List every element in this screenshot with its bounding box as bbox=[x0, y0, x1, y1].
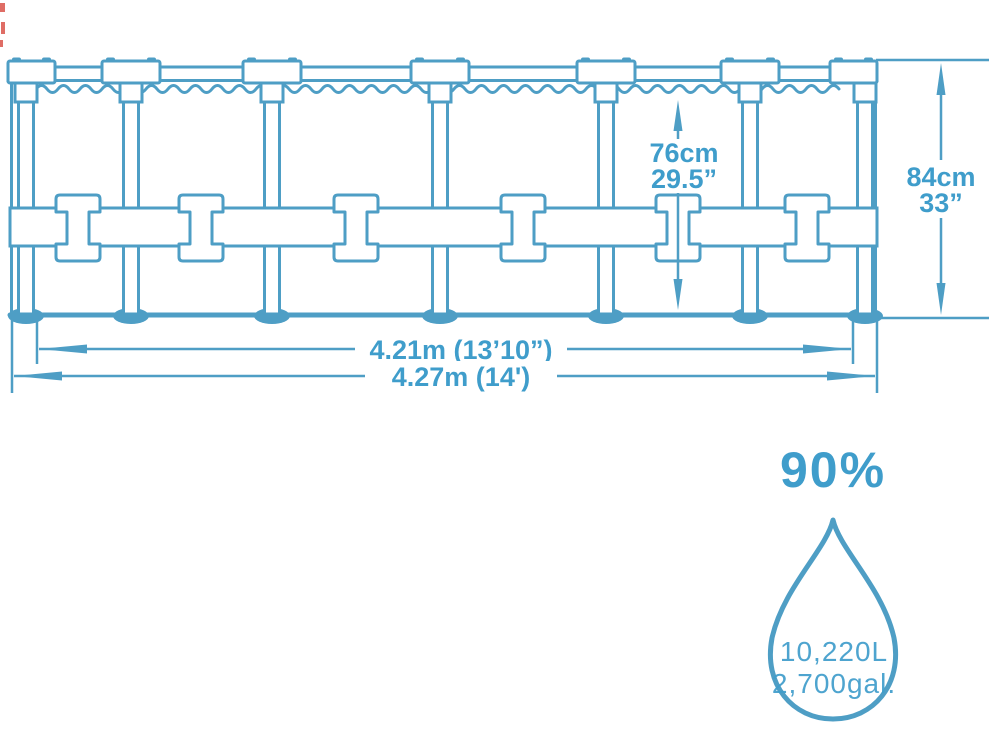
fill-percent-label: 90% bbox=[780, 442, 886, 498]
capacity-liters-label: 10,220L bbox=[780, 636, 888, 667]
frame-leg bbox=[113, 82, 149, 324]
scan-artifact-marks bbox=[0, 3, 5, 47]
diagram-page: 76cm 29.5” 84cm 33” 4.21m (13’10”) 4.27m… bbox=[0, 0, 1000, 750]
frame-leg bbox=[422, 82, 458, 324]
height-imperial-label: 33” bbox=[919, 188, 963, 218]
capacity-gallons-label: 2,700gal. bbox=[772, 668, 896, 699]
capacity-indicator: 90% 10,220L 2,700gal. bbox=[770, 442, 896, 719]
pool-spec-diagram: 76cm 29.5” 84cm 33” 4.21m (13’10”) 4.27m… bbox=[0, 0, 1000, 750]
water-depth-imperial-label: 29.5” bbox=[651, 164, 717, 194]
frame-leg bbox=[588, 82, 624, 324]
inner-diameter-label: 4.21m (13’10”) bbox=[369, 335, 552, 365]
pool-frame bbox=[8, 58, 883, 325]
top-rail bbox=[8, 58, 877, 84]
top-rail-plates bbox=[8, 61, 877, 83]
outer-diameter-label: 4.27m (14') bbox=[392, 362, 531, 392]
frame-leg bbox=[254, 82, 290, 324]
frame-leg bbox=[732, 82, 768, 324]
frame-leg bbox=[847, 82, 883, 324]
frame-legs bbox=[8, 82, 883, 324]
dim-height: 84cm 33” bbox=[858, 60, 989, 318]
frame-leg bbox=[8, 82, 44, 324]
